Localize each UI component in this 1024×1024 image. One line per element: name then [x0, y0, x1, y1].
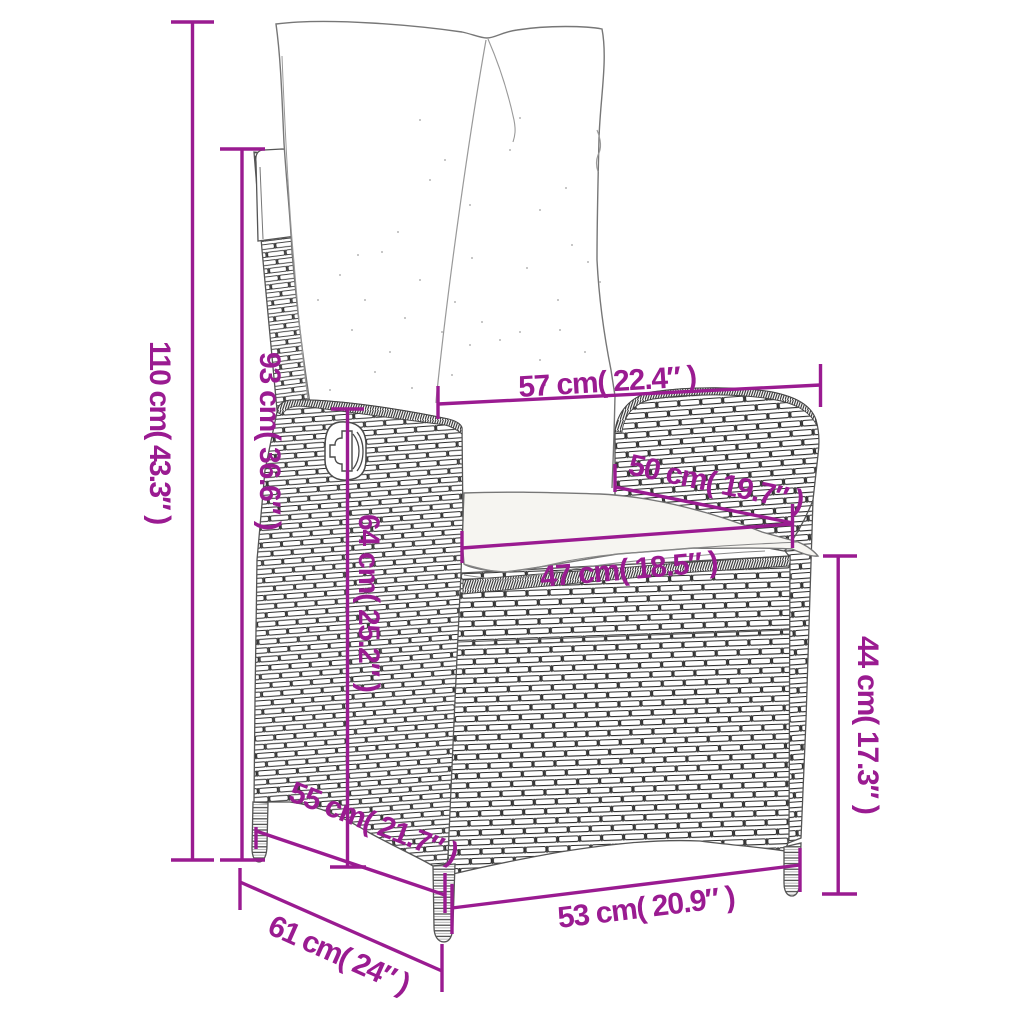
svg-text:64 cm( 25.2″ ): 64 cm( 25.2″ ) — [352, 514, 385, 692]
svg-text:53 cm( 20.9″ ): 53 cm( 20.9″ ) — [556, 881, 737, 935]
svg-text:44 cm( 17.3″ ): 44 cm( 17.3″ ) — [851, 636, 884, 814]
svg-text:93 cm( 36.6″ ): 93 cm( 36.6″ ) — [253, 352, 286, 530]
svg-text:61 cm( 24″ ): 61 cm( 24″ ) — [263, 909, 414, 1001]
svg-text:110 cm( 43.3″ ): 110 cm( 43.3″ ) — [143, 341, 176, 524]
